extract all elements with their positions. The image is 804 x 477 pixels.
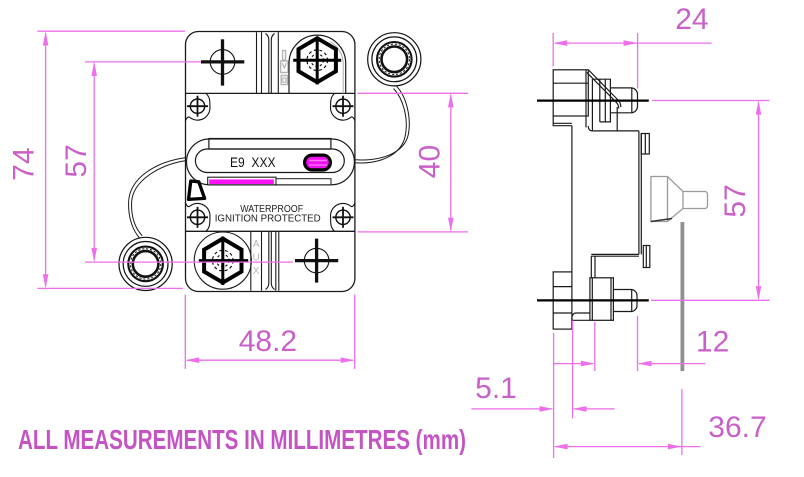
svg-text:57: 57 [60,144,93,177]
svg-text:A: A [253,239,260,250]
svg-text:48.2: 48.2 [239,325,297,358]
svg-text:36.7: 36.7 [708,411,766,444]
svg-text:E9 XXX: E9 XXX [230,155,276,170]
svg-text:57: 57 [719,184,752,217]
svg-text:24: 24 [675,3,708,36]
svg-text:12: 12 [696,326,729,359]
svg-text:X: X [253,266,260,277]
svg-text:IGNITION PROTECTED: IGNITION PROTECTED [215,213,321,224]
svg-text:ALL MEASUREMENTS IN MILLIMETRE: ALL MEASUREMENTS IN MILLIMETRES (mm) [18,424,466,455]
svg-text:40: 40 [413,145,446,178]
svg-text:5.1: 5.1 [475,372,517,405]
svg-text:74: 74 [7,147,40,180]
